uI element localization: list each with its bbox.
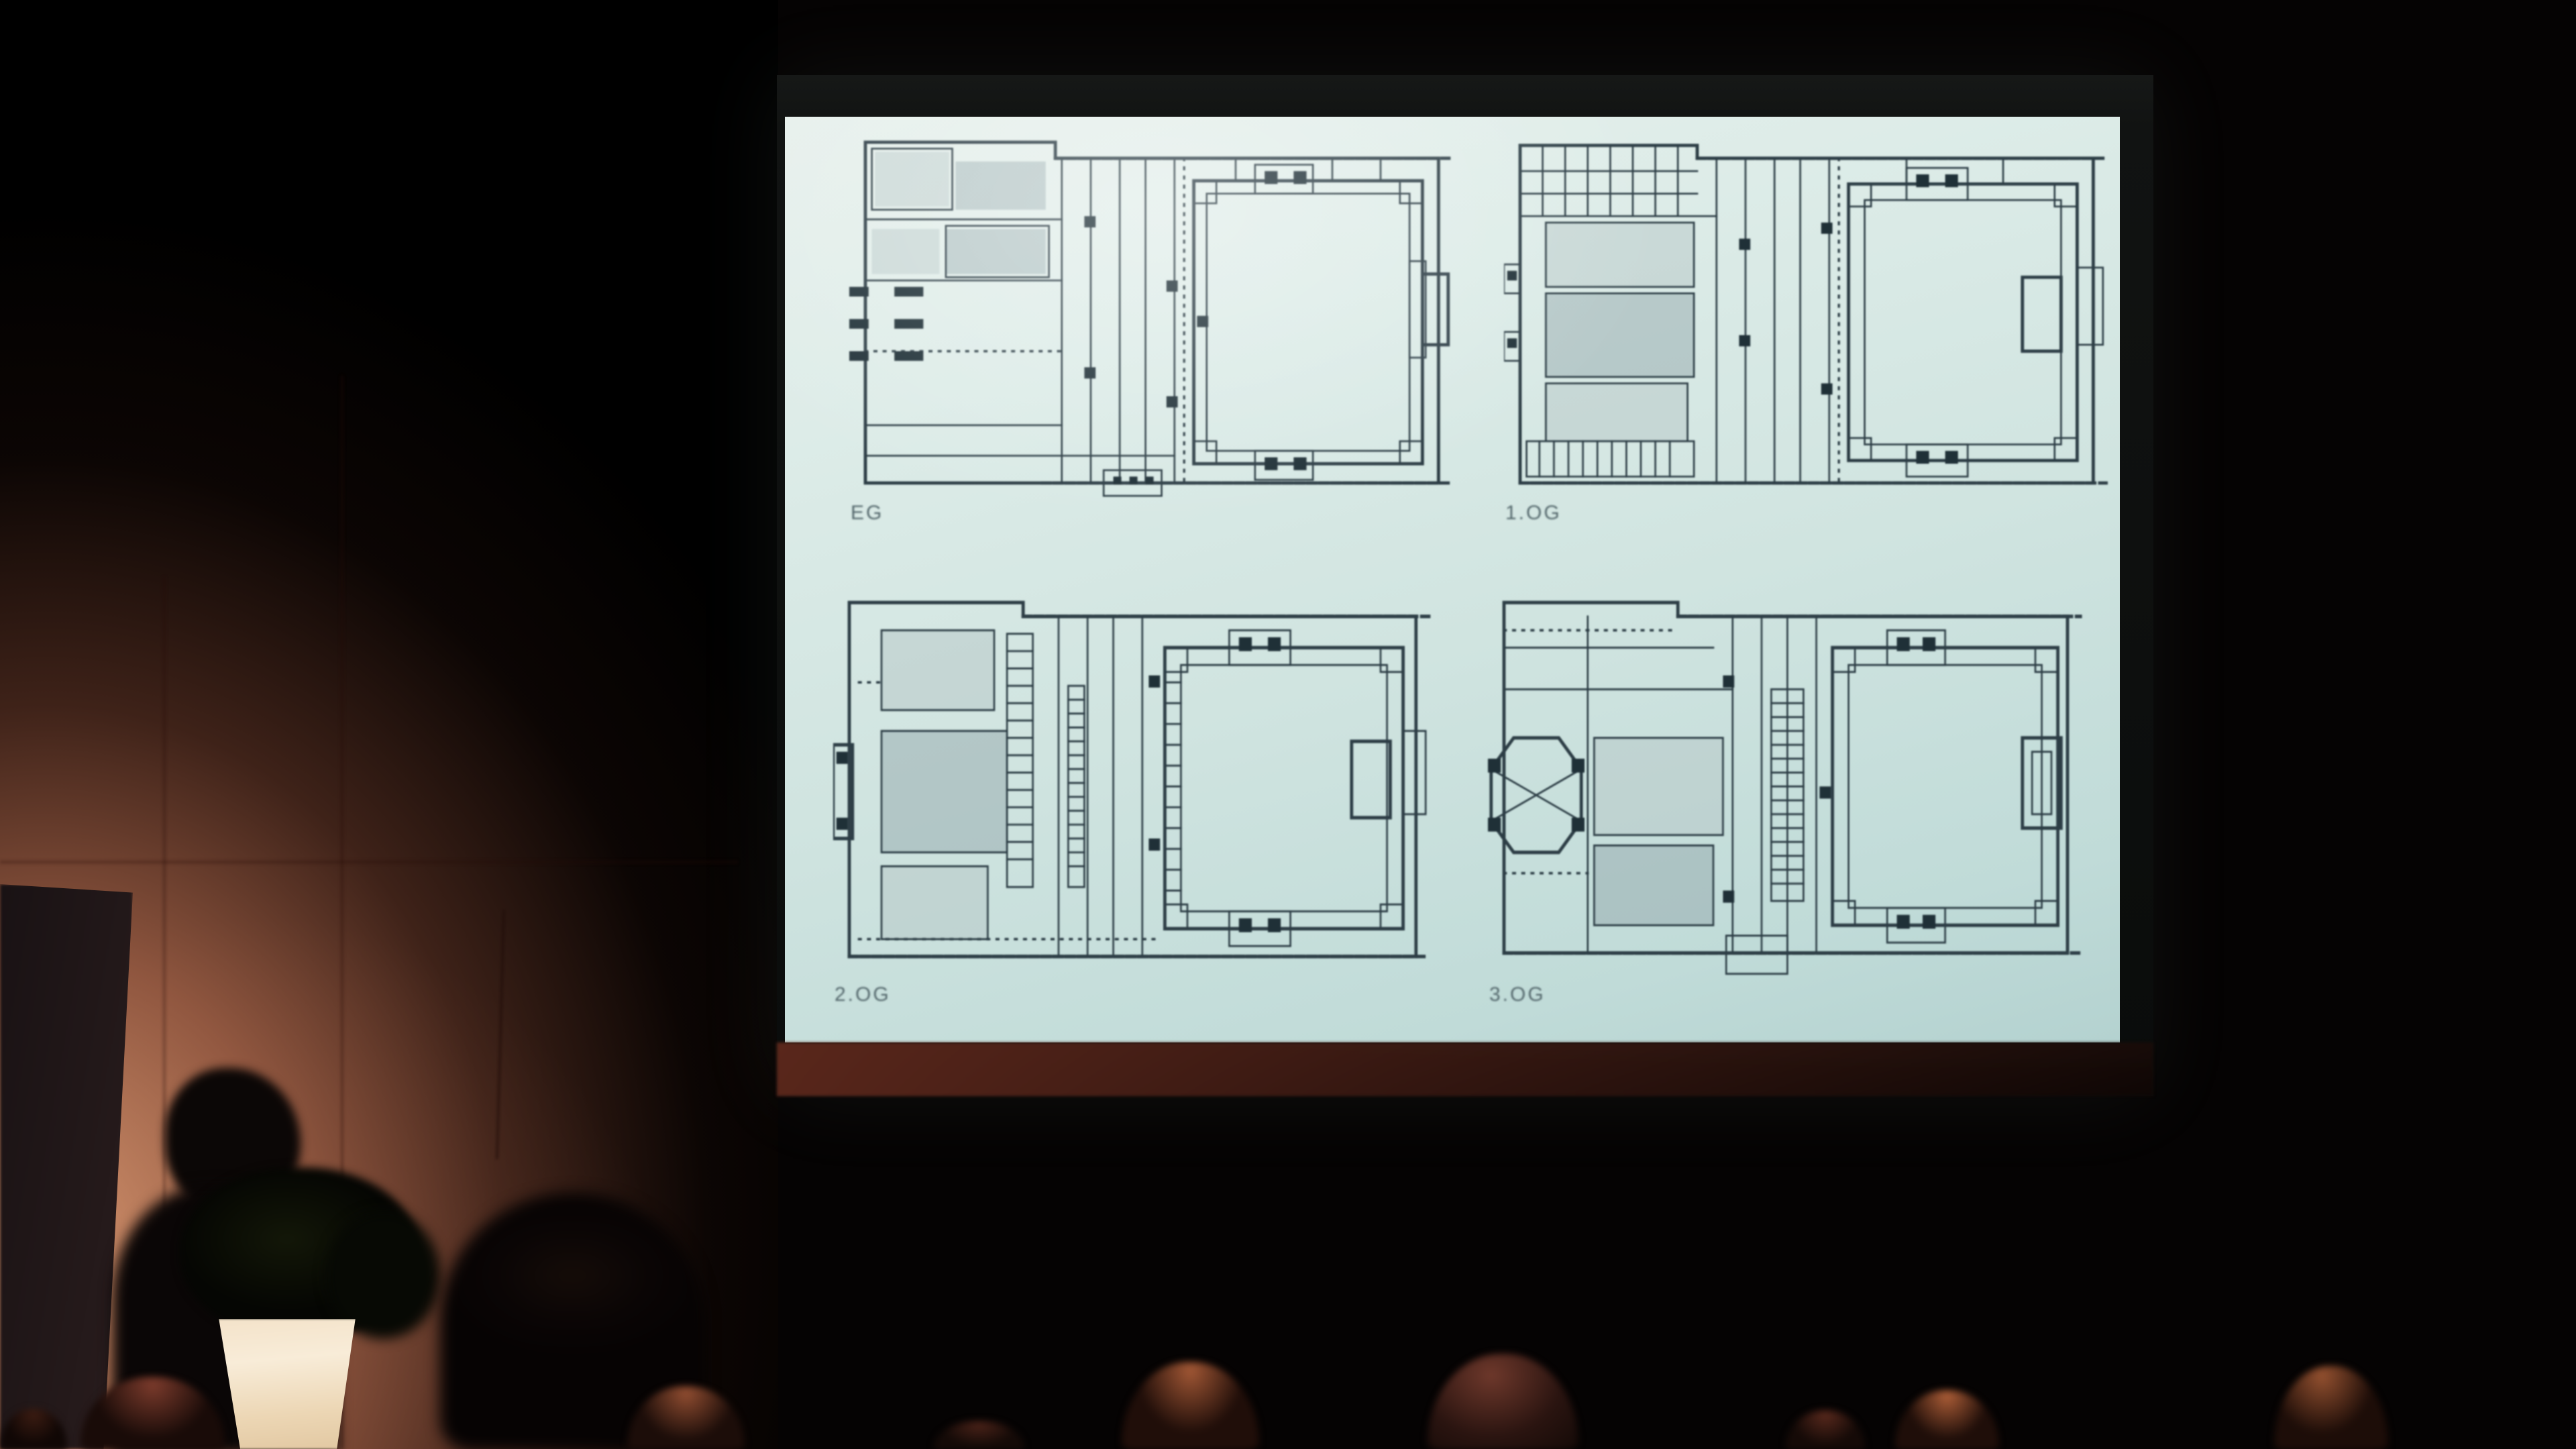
blueprint-drawing-2og [833, 578, 1445, 981]
floor-plan-grid: EG [849, 126, 2116, 1006]
floor-plan-label: 2.OG [835, 983, 1445, 1006]
floor-plan-3og: 3.OG [1488, 578, 2100, 1006]
slide: EG [785, 117, 2120, 1042]
screen-lower-band [777, 1042, 2153, 1096]
floor-plan-label: EG [851, 502, 1461, 525]
planter-pot [216, 1319, 358, 1449]
blueprint-drawing-3og [1488, 578, 2100, 981]
wall-seam [0, 861, 738, 863]
audience-head [1122, 1362, 1259, 1449]
floor-plan-label: 1.OG [1505, 502, 2116, 525]
blueprint-drawing-eg [849, 126, 1461, 499]
floor-plan-1og: 1.OG [1504, 126, 2116, 578]
blueprint-drawing-1og [1504, 126, 2116, 499]
floor-plan-label: 3.OG [1489, 983, 2100, 1006]
audience-head [934, 1421, 1024, 1449]
floor-plan-2og: 2.OG [833, 578, 1445, 1006]
projection-screen: EG [777, 75, 2153, 1096]
audience-head [1786, 1410, 1865, 1449]
audience-head [1895, 1390, 1999, 1449]
audience-head [2274, 1366, 2388, 1449]
floor-plan-eg: EG [849, 126, 1461, 578]
auditorium-photo: EG [0, 0, 2576, 1449]
audience-head [1428, 1354, 1578, 1449]
